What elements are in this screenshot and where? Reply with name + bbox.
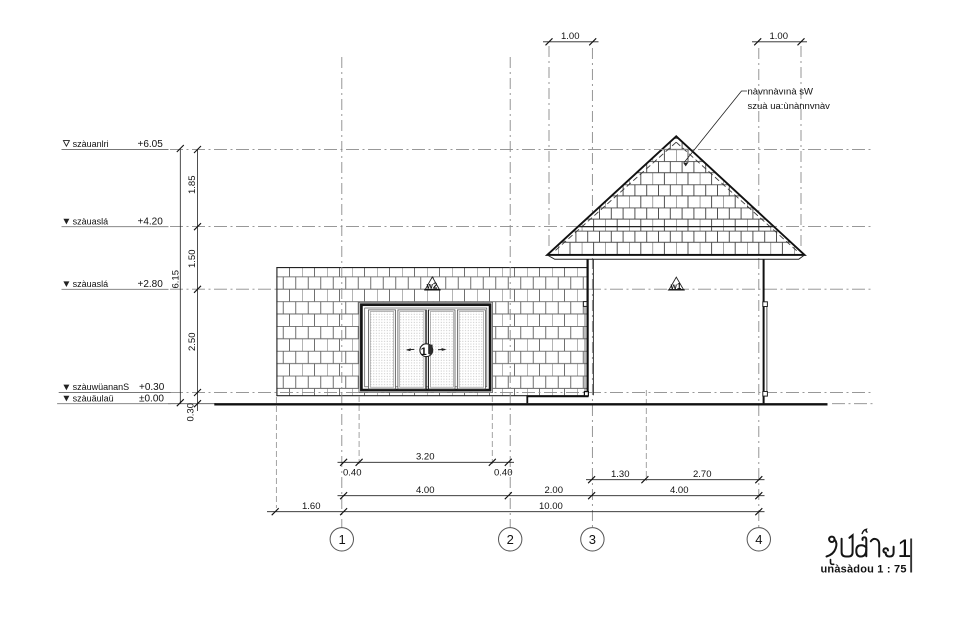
svg-text:0.40: 0.40 [494,467,513,478]
svg-text:4: 4 [755,532,762,547]
svg-text:3: 3 [589,532,596,547]
svg-text:+0.30: +0.30 [139,382,165,393]
svg-text:1: 1 [421,346,427,358]
svg-text:szàuwüananS: szàuwüananS [73,382,130,392]
svg-text:1: 1 [339,532,346,547]
svg-text:szàuaslá: szàuaslá [73,279,109,289]
svg-text:1.30: 1.30 [611,469,630,480]
svg-text:+2.80: +2.80 [138,279,164,290]
svg-text:0.40: 0.40 [343,467,362,478]
svg-text:3.20: 3.20 [416,451,435,462]
svg-text:1.60: 1.60 [302,501,321,512]
svg-text:6.15: 6.15 [170,270,181,289]
svg-text:1.00: 1.00 [770,31,789,42]
svg-text:2.50: 2.50 [187,333,198,352]
svg-text:1.85: 1.85 [187,176,198,195]
svg-text:w1: w1 [670,282,682,291]
svg-text:nàvnnàvınà sW: nàvnnàvınà sW [748,87,814,98]
svg-text:szàuaslá: szàuaslá [73,216,109,226]
svg-text:4.00: 4.00 [416,485,435,496]
svg-text:0.30: 0.30 [186,403,197,422]
svg-text:±0.00: ±0.00 [139,393,164,404]
svg-text:szuà ua:ùnànnvnàv: szuà ua:ùnànnvnàv [748,101,831,112]
svg-text:szàuäulaü: szàuäulaü [73,393,114,403]
svg-text:+4.20: +4.20 [138,216,164,227]
svg-text:1: 1 [898,535,912,563]
svg-text:1.00: 1.00 [561,31,580,42]
svg-text:1.50: 1.50 [187,250,198,269]
svg-text:szàuanlri: szàuanlri [73,139,109,149]
svg-text:10.00: 10.00 [539,501,563,512]
svg-text:+6.05: +6.05 [138,139,164,150]
svg-text:2: 2 [507,532,514,547]
svg-text:2.70: 2.70 [693,469,712,480]
svg-text:unàsàdou 1 : 75: unàsàdou 1 : 75 [821,564,907,576]
svg-text:2.00: 2.00 [545,485,564,496]
svg-text:4.00: 4.00 [670,485,689,496]
